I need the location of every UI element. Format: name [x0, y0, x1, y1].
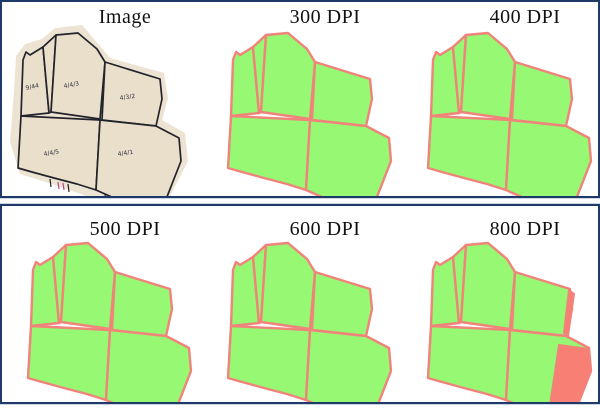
segmented-parcels [228, 243, 391, 402]
scanned-parcel-lines [18, 33, 181, 196]
panel-400dpi: 400 DPI [402, 2, 600, 196]
panel-500dpi: 500 DPI [2, 206, 202, 402]
bottom-row-box: 500 DPI 600 DPI 800 DPI [0, 204, 600, 404]
panel-600dpi: 600 DPI [202, 206, 402, 402]
segmented-parcels [428, 33, 591, 196]
segmented-map-500dpi [2, 212, 202, 402]
segmented-map-600dpi [202, 212, 402, 402]
panel-300dpi: 300 DPI [202, 2, 402, 196]
segmented-parcels [228, 33, 391, 196]
top-row-box: Image 9/44 4/4/3 4/3/2 4/4/5 4/4/1 300 D… [0, 0, 600, 198]
segmented-map-300dpi [202, 2, 402, 196]
segmented-map-800dpi [402, 212, 600, 402]
segmented-map-400dpi [402, 2, 600, 196]
segmented-parcels [28, 243, 191, 402]
figure-dpi-comparison: Image 9/44 4/4/3 4/3/2 4/4/5 4/4/1 300 D… [0, 0, 600, 410]
panel-image: Image 9/44 4/4/3 4/3/2 4/4/5 4/4/1 [2, 2, 202, 196]
scanned-map: 9/44 4/4/3 4/3/2 4/4/5 4/4/1 [2, 2, 202, 196]
panel-800dpi: 800 DPI [402, 206, 600, 402]
